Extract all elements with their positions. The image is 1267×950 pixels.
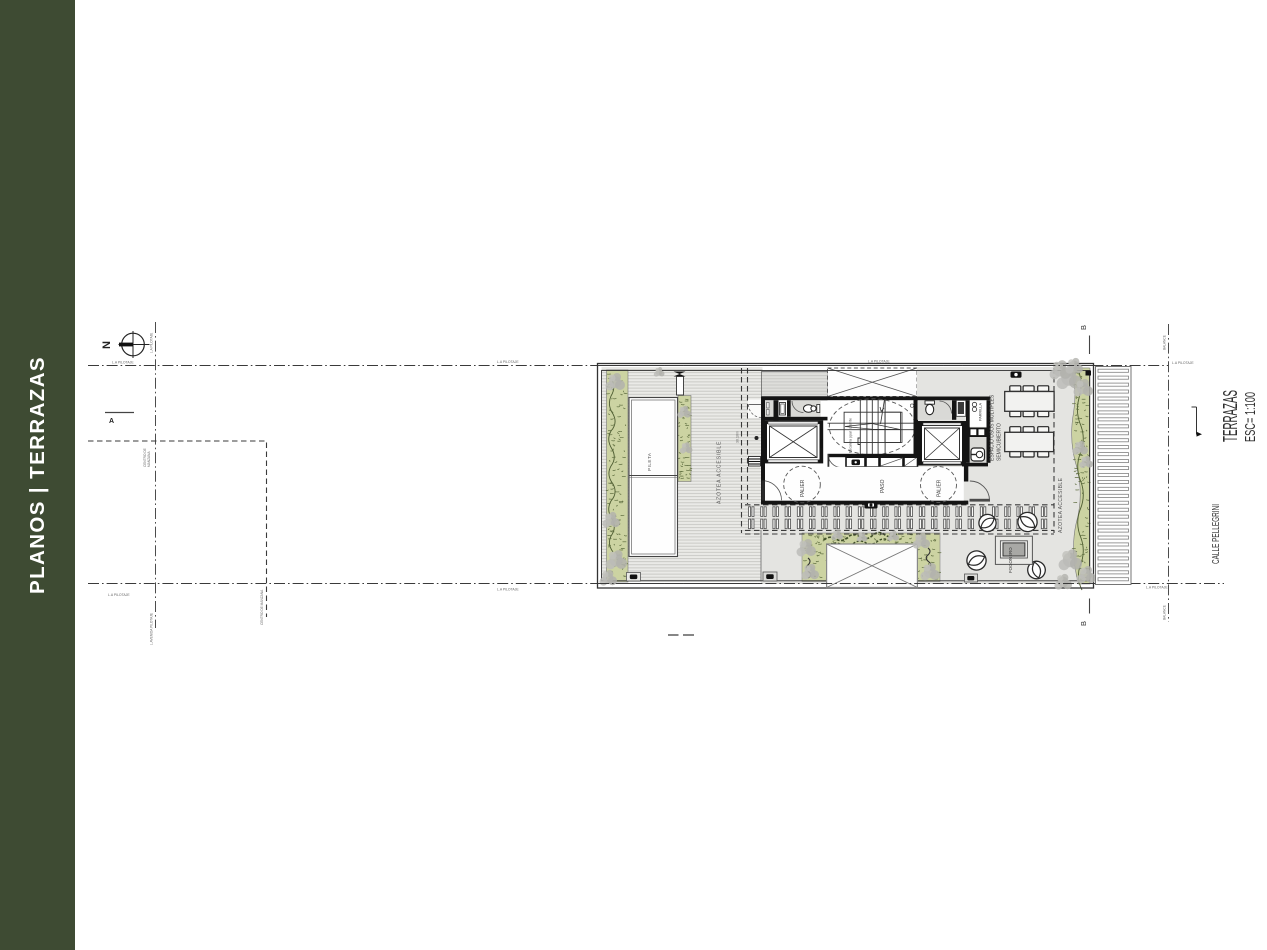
svg-text:PARRILLA: PARRILLA: [979, 402, 983, 421]
svg-text:N: N: [101, 341, 113, 349]
svg-text:Escalera ppal rodante: Escalera ppal rodante: [849, 418, 853, 453]
svg-text:L.A PILOTAJE: L.A PILOTAJE: [1146, 586, 1168, 590]
svg-text:TERRAZAS: TERRAZAS: [1220, 390, 1242, 442]
svg-text:L.A PILOTAJE: L.A PILOTAJE: [112, 361, 134, 365]
svg-text:BALANCE: BALANCE: [1163, 335, 1167, 350]
svg-text:ESC= 1:100: ESC= 1:100: [1242, 392, 1259, 442]
svg-text:CENTRO DE MANZANA: CENTRO DE MANZANA: [260, 589, 264, 625]
svg-text:MANZANA: MANZANA: [147, 451, 151, 467]
svg-text:PASO: PASO: [880, 479, 886, 493]
svg-text:L.A PILOTAJE: L.A PILOTAJE: [497, 588, 519, 592]
svg-text:PALIER: PALIER: [937, 479, 943, 497]
svg-text:AZOTEA ACCESIBLE: AZOTEA ACCESIBLE: [717, 441, 723, 504]
svg-text:L.A PILOTAJE: L.A PILOTAJE: [1172, 361, 1194, 365]
svg-text:PALIER: PALIER: [800, 479, 806, 497]
svg-text:L.A PILOTAJE: L.A PILOTAJE: [108, 593, 130, 597]
svg-text:SEMICUBIERTO: SEMICUBIERTO: [997, 423, 1003, 461]
svg-text:30.10m: 30.10m: [736, 431, 740, 443]
svg-text:L.A PILOTAJE: L.A PILOTAJE: [497, 360, 519, 364]
svg-text:AZOTEA ACCESIBLE: AZOTEA ACCESIBLE: [1058, 477, 1064, 533]
svg-text:BALANCE: BALANCE: [1163, 605, 1167, 620]
svg-text:ESPACIO USOS MULTIPLES: ESPACIO USOS MULTIPLES: [990, 394, 996, 461]
svg-text:L.AVENIDA PILOTAJE: L.AVENIDA PILOTAJE: [150, 613, 154, 645]
svg-text:FOGONERO: FOGONERO: [1008, 547, 1013, 573]
svg-text:A: A: [109, 418, 114, 425]
svg-text:PILETA: PILETA: [647, 452, 652, 471]
svg-text:B: B: [1079, 621, 1088, 626]
svg-text:L.A PILOTAJE: L.A PILOTAJE: [150, 333, 154, 353]
svg-text:B: B: [1079, 325, 1088, 330]
svg-text:CALLE PELLEGRINI: CALLE PELLEGRINI: [1210, 504, 1222, 564]
